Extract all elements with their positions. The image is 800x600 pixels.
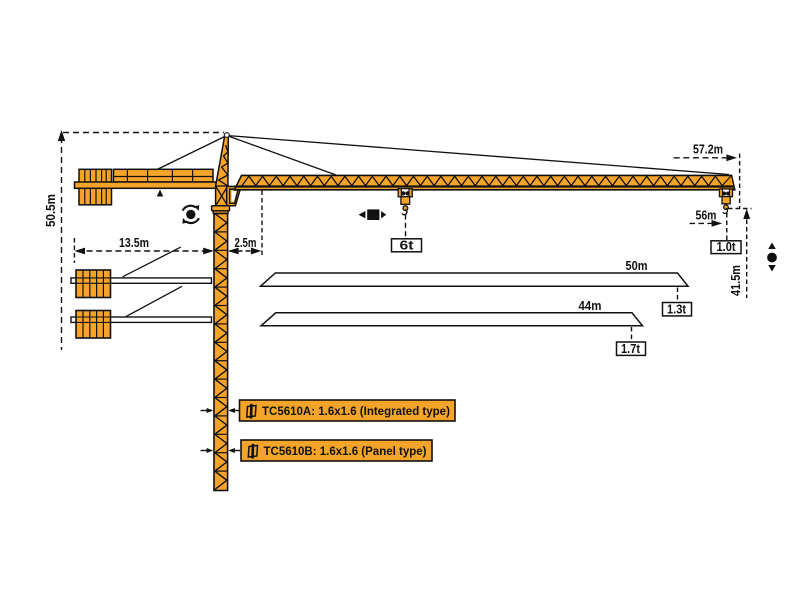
svg-text:50m: 50m (626, 259, 648, 273)
svg-text:1.3t: 1.3t (667, 302, 687, 316)
svg-text:2.5m: 2.5m (235, 236, 257, 250)
svg-text:50.5m: 50.5m (44, 194, 58, 227)
svg-text:56m: 56m (696, 209, 717, 223)
svg-text:TC5610A: 1.6x1.6 (Integrated: TC5610A: 1.6x1.6 (Integrated type) (262, 406, 450, 418)
svg-text:6t: 6t (400, 238, 415, 252)
svg-text:41.5m: 41.5m (729, 265, 743, 296)
svg-text:13.5m: 13.5m (119, 236, 149, 250)
svg-text:44m: 44m (579, 299, 602, 313)
svg-text:1.0t: 1.0t (717, 240, 737, 254)
svg-text:TC5610B: 1.6x1.6 (Panel type: TC5610B: 1.6x1.6 (Panel type) (264, 446, 427, 458)
svg-text:57.2m: 57.2m (693, 143, 723, 157)
svg-text:1.7t: 1.7t (621, 342, 641, 356)
